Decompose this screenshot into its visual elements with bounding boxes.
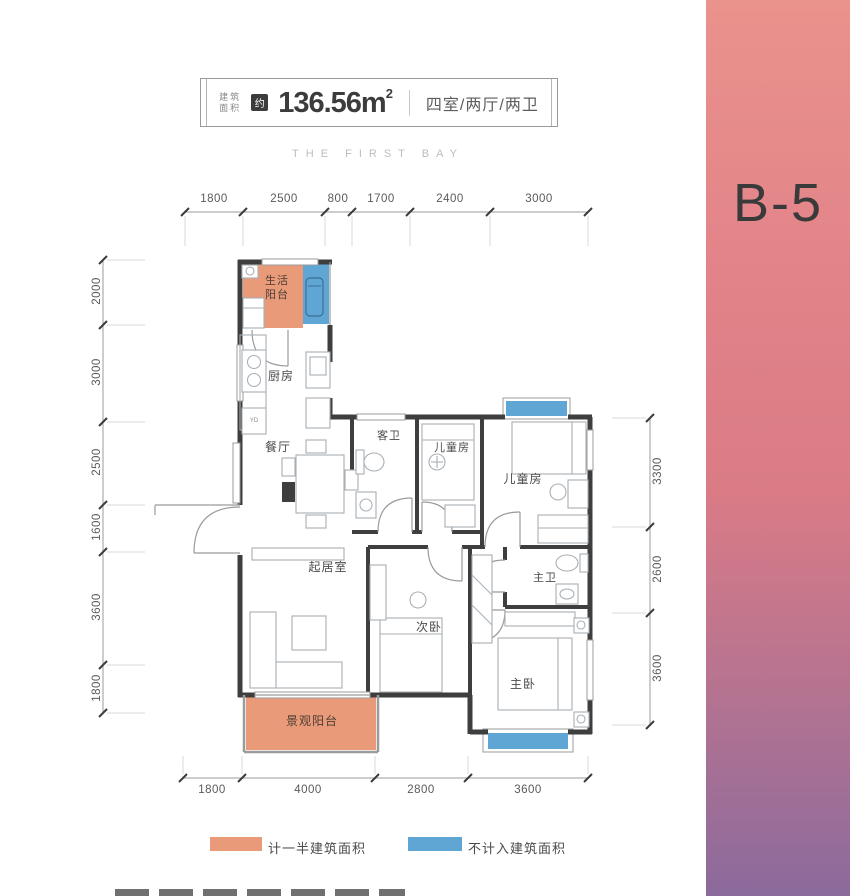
layout-summary: 四室/两厅/两卫 bbox=[426, 91, 539, 115]
dim-right-2: 2600 bbox=[652, 539, 664, 599]
dim-left-1: 2000 bbox=[91, 261, 103, 321]
room-label-master-bath: 主卫 bbox=[533, 571, 557, 585]
dim-top-4: 1700 bbox=[351, 193, 411, 205]
dim-right-1: 3300 bbox=[652, 441, 664, 501]
room-label-kids-room-1: 儿童房 bbox=[434, 441, 470, 455]
unit-label: B-5 bbox=[706, 172, 850, 234]
dim-top-2: 2500 bbox=[254, 193, 314, 205]
room-label-view-balcony: 景观阳台 bbox=[286, 714, 338, 728]
area-label: 建筑 面积 bbox=[219, 92, 241, 114]
room-label-second-bedroom: 次卧 bbox=[416, 620, 442, 634]
room-label-kitchen: 厨房 bbox=[268, 369, 294, 383]
clipped-footer-text bbox=[115, 889, 405, 896]
room-label-life-balcony: 生活 阳台 bbox=[265, 274, 289, 302]
legend-label-excluded-area: 不计入建筑面积 bbox=[468, 838, 566, 857]
kids2-bay-window bbox=[506, 401, 567, 416]
room-label-master-bedroom: 主卧 bbox=[510, 677, 536, 691]
dim-top-5: 2400 bbox=[420, 193, 480, 205]
room-label-guest-bath: 客卫 bbox=[377, 429, 401, 443]
legend-swatch-excluded-area bbox=[408, 837, 462, 851]
dim-left-4: 1600 bbox=[91, 497, 103, 557]
dim-top-6: 3000 bbox=[509, 193, 569, 205]
gradient-side-panel bbox=[706, 0, 850, 896]
room-label-kids-room-2: 儿童房 bbox=[503, 472, 542, 486]
dim-right-3: 3600 bbox=[652, 638, 664, 698]
dim-left-6: 1800 bbox=[91, 658, 103, 718]
dim-top-1: 1800 bbox=[184, 193, 244, 205]
dim-bottom-1: 1800 bbox=[182, 784, 242, 796]
area-value: 136.56m2 bbox=[278, 86, 393, 120]
legend-label-half-area: 计一半建筑面积 bbox=[268, 838, 366, 857]
room-label-living: 起居室 bbox=[308, 560, 347, 574]
dim-bottom-3: 2800 bbox=[391, 784, 451, 796]
flue-marker-label: YD bbox=[250, 418, 258, 424]
header-divider bbox=[409, 90, 410, 116]
approx-badge: 约 bbox=[251, 94, 268, 111]
area-header-box: 建筑 面积 约 136.56m2 四室/两厅/两卫 bbox=[200, 78, 558, 127]
dim-left-2: 3000 bbox=[91, 342, 103, 402]
dim-left-3: 2500 bbox=[91, 432, 103, 492]
dim-bottom-4: 3600 bbox=[498, 784, 558, 796]
dim-bottom-2: 4000 bbox=[278, 784, 338, 796]
dim-left-5: 3600 bbox=[91, 577, 103, 637]
master-bay-window bbox=[488, 733, 568, 749]
legend-swatch-half-area bbox=[210, 837, 262, 851]
room-label-dining: 餐厅 bbox=[265, 440, 291, 454]
project-subtitle: THE FIRST BAY bbox=[200, 148, 556, 160]
